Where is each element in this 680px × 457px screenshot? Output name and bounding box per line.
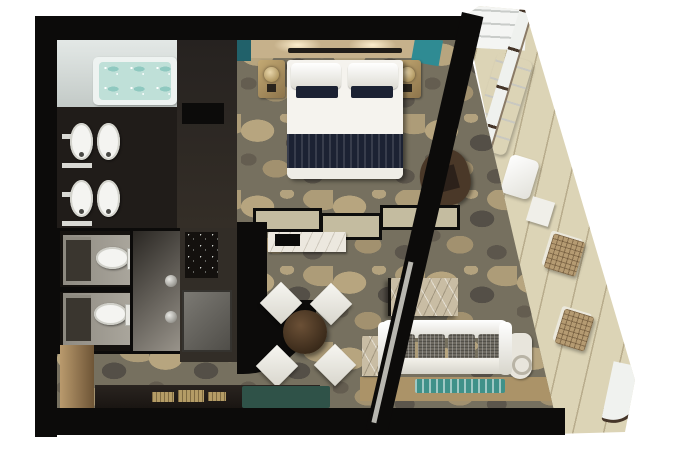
minibar [185,232,218,278]
closet-cabinet [182,103,224,124]
round-dining-table [283,310,327,354]
side-table-left [362,336,378,376]
lamp-base [403,84,412,92]
tv-icon [275,234,300,246]
service-door [182,290,232,352]
wc2-storage [63,295,91,341]
sink-1 [70,123,93,160]
faucet-icon [106,209,111,214]
accent-pillow-left [296,86,338,98]
accent-pillow-right [351,86,393,98]
headboard [288,48,402,53]
nightstand-left [258,60,285,98]
faucet-icon [79,152,84,157]
scroll-carving-icon [512,355,532,375]
lamp-icon [264,67,279,82]
headboard-wall [250,38,420,58]
bathtub [93,57,177,105]
bed-runner [287,134,403,168]
minibar-column [180,228,237,362]
faucet-icon [79,209,84,214]
toilet-1 [96,247,129,269]
door-knob-icon [165,275,177,287]
door-knob-icon [165,311,177,323]
tv-console [268,232,346,252]
faucet-icon [106,152,111,157]
sink-4 [97,180,120,217]
wardrobe-closet [177,38,237,228]
sofa-cushion-2 [418,334,445,360]
wall-top [35,16,470,40]
desk-accessory-1 [152,392,174,402]
bathtub-water [99,62,171,100]
desk-accessory-3 [208,392,226,401]
floor-plan-canvas [0,0,680,457]
desk-accessory-2 [178,390,204,402]
toilet-2 [94,303,127,325]
wc1-storage [63,237,91,281]
sink-3 [70,180,93,217]
teal-rug [415,379,505,393]
wall-bottom [35,408,565,435]
sofa-cushion-3 [448,334,475,360]
wall-left [35,16,57,437]
teal-mat [242,386,330,408]
sink-2 [97,123,120,160]
cabinet-tan [60,345,94,415]
shower-cabin [130,228,186,354]
teal-wall-accent-left [237,38,251,61]
vanity-counter [57,107,179,230]
lamp-base [267,84,276,92]
king-bed [287,60,403,179]
bed-foot [287,168,403,179]
sofa-arm-right [499,322,512,375]
